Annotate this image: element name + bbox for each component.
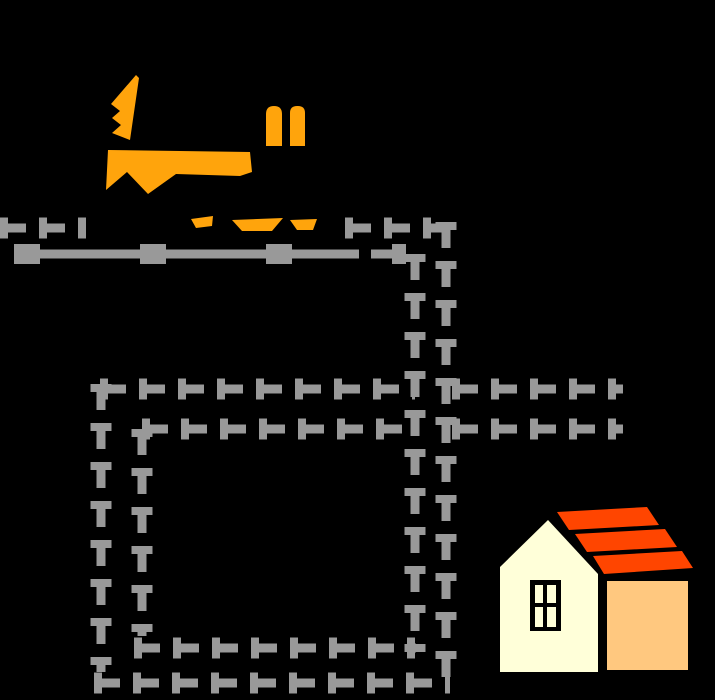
fox-tail — [111, 75, 139, 140]
fox-maze-illustration — [0, 0, 715, 700]
house-window-pane-1 — [535, 585, 543, 603]
fox-middle-foot — [232, 218, 283, 231]
house-roof-stripe-1 — [557, 507, 659, 530]
fox — [106, 75, 317, 231]
fox-back-foot — [290, 219, 317, 230]
fox-front-foot — [191, 216, 213, 228]
illustration-canvas — [0, 0, 715, 700]
house-window-pane-2 — [547, 585, 556, 603]
house — [500, 507, 693, 672]
house-window-pane-4 — [547, 607, 556, 627]
house-roof-stripe-2 — [575, 529, 677, 552]
house-side-wall — [607, 581, 688, 670]
fox-ear-1 — [266, 106, 282, 146]
house-roof-stripe-3 — [593, 551, 693, 574]
house-window-frame — [530, 580, 561, 631]
house-window-pane-3 — [535, 607, 543, 627]
fox-ear-2 — [290, 106, 305, 146]
fox-body — [106, 150, 252, 194]
